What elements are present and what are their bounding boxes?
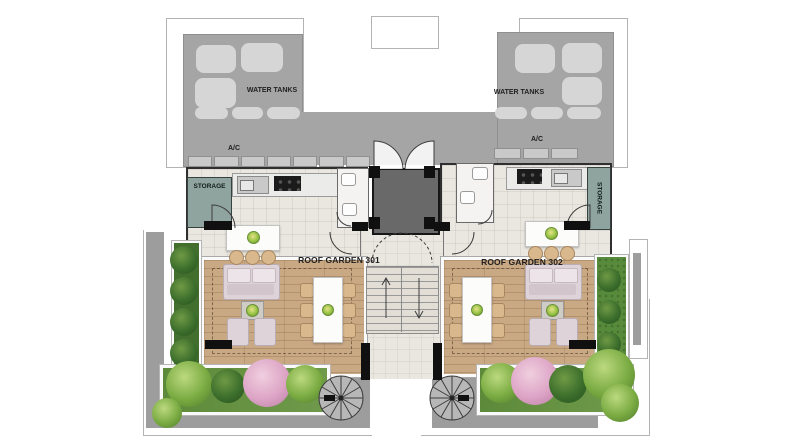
plant: [545, 227, 558, 240]
dining-chair: [342, 323, 356, 338]
water-tanks-label-right: WATER TANKS: [481, 89, 557, 96]
bar-stool: [261, 250, 276, 265]
grass-clump: [597, 268, 621, 292]
water-tank: [195, 78, 236, 108]
dining-chair: [449, 283, 463, 298]
plant: [247, 231, 260, 244]
sofa-cushion: [227, 268, 251, 283]
storage-label-302: STORAGE: [596, 182, 603, 214]
sofa: [223, 264, 280, 300]
toilet-301: [341, 173, 356, 186]
wall-segment: [434, 222, 450, 231]
bush-dark: [211, 369, 245, 403]
water-tanks-label-left: WATER TANKS: [235, 87, 309, 94]
flowering-bush-pink: [243, 359, 291, 407]
wall-segment: [352, 222, 368, 231]
staircase-divider: [401, 266, 402, 332]
water-tank: [515, 44, 555, 73]
storage-room-302: STORAGE: [587, 167, 611, 230]
sink-basin: [554, 173, 568, 184]
parapet-line-left: [143, 230, 144, 436]
sofa-cushion: [252, 268, 276, 283]
wall-segment: [205, 340, 232, 349]
bush-dark: [549, 365, 587, 403]
water-tank: [562, 77, 602, 105]
bush-green: [286, 365, 324, 403]
wall-segment: [569, 340, 596, 349]
lounge-chair: [529, 318, 551, 346]
unit-301-name: ROOF GARDEN 301: [283, 255, 395, 265]
parapet-line-bottom-left: [143, 435, 372, 436]
elevator-corner-post: [369, 217, 380, 229]
lounge-chair: [254, 318, 276, 346]
ac-unit-row-left: [188, 156, 370, 167]
wash-basin-301: [342, 203, 357, 216]
bush-green-corner: [601, 384, 639, 422]
ac-unit: [267, 156, 291, 167]
wall-segment: [564, 221, 590, 230]
sofa-seat: [227, 284, 274, 295]
water-tank-horizontal: [567, 107, 601, 119]
dining-chair: [449, 303, 463, 318]
dining-chair: [491, 283, 505, 298]
storage-label-301: STORAGE: [193, 183, 225, 190]
cooktop-301: [274, 176, 301, 191]
hedge-bush: [170, 246, 198, 274]
elevator-corner-post: [424, 166, 435, 178]
dining-chair: [300, 323, 314, 338]
ac-label-right: A/C: [517, 136, 557, 143]
bar-stool: [245, 250, 260, 265]
floor-plan: WATER TANKS WATER TANKS A/C A/C STORAGE …: [0, 0, 790, 445]
wash-basin-302: [460, 191, 475, 204]
wall-segment: [204, 221, 232, 230]
hedge-bush: [170, 308, 198, 336]
hedge-bush: [170, 277, 198, 305]
unit-302-name: ROOF GARDEN 302: [466, 257, 578, 267]
dining-chair: [300, 303, 314, 318]
ac-label-left: A/C: [214, 145, 254, 152]
sofa-cushion: [529, 268, 553, 283]
dining-chair: [491, 323, 505, 338]
parapet-outline-top-center: [371, 16, 439, 49]
water-tank: [196, 45, 236, 73]
ac-unit: [188, 156, 212, 167]
water-tank: [562, 43, 602, 73]
water-tank-horizontal: [195, 107, 228, 119]
staircase: [366, 266, 439, 334]
grass-clump: [597, 300, 621, 324]
sofa-cushion: [554, 268, 578, 283]
dining-chair: [449, 323, 463, 338]
plant: [471, 304, 483, 316]
ac-unit: [551, 148, 578, 159]
sink-basin: [240, 180, 254, 191]
ac-unit: [241, 156, 265, 167]
parapet-ledge-right: [633, 253, 641, 345]
sofa: [525, 264, 582, 300]
water-tank-horizontal: [232, 107, 263, 119]
wall-segment: [361, 343, 370, 380]
water-tank-horizontal: [531, 107, 563, 119]
water-tank-horizontal: [267, 107, 300, 119]
parapet-line-bottom-right: [421, 435, 650, 436]
ac-unit: [523, 148, 550, 159]
wall-segment: [433, 343, 442, 380]
sofa-seat: [529, 284, 576, 295]
elevator-corner-post: [369, 166, 380, 178]
parapet-line-right: [649, 299, 650, 436]
bar-stool: [229, 250, 244, 265]
ac-unit: [346, 156, 370, 167]
plant: [322, 304, 334, 316]
cooktop-302: [517, 169, 542, 184]
ac-unit-row-right: [494, 148, 578, 159]
dining-chair: [342, 303, 356, 318]
ac-unit: [494, 148, 521, 159]
ac-unit: [214, 156, 238, 167]
plant: [246, 304, 259, 317]
plant: [546, 304, 559, 317]
ac-unit: [319, 156, 343, 167]
bush-green-small: [152, 398, 182, 428]
dining-chair: [300, 283, 314, 298]
dining-chair: [342, 283, 356, 298]
dining-chair: [491, 303, 505, 318]
kitchen-sink-302: [551, 169, 582, 187]
water-tank: [241, 43, 283, 72]
kitchen-sink-301: [237, 176, 269, 194]
ac-unit: [293, 156, 317, 167]
water-tank-horizontal: [495, 107, 527, 119]
toilet-302: [472, 167, 488, 180]
